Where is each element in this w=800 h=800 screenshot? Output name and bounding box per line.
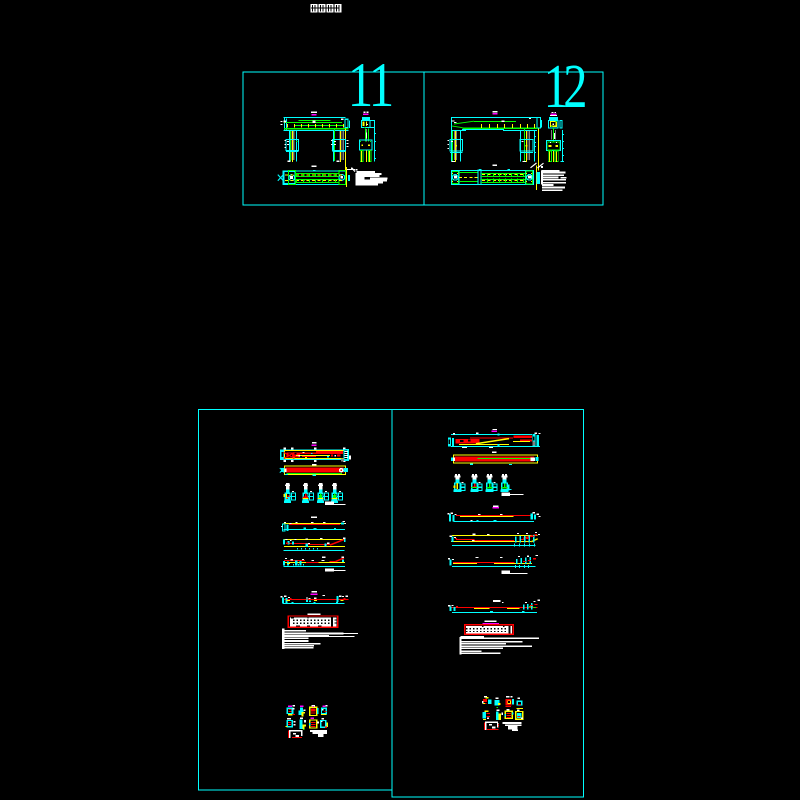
svg-text:2: 2 bbox=[563, 52, 587, 121]
svg-text:1: 1 bbox=[369, 49, 395, 121]
